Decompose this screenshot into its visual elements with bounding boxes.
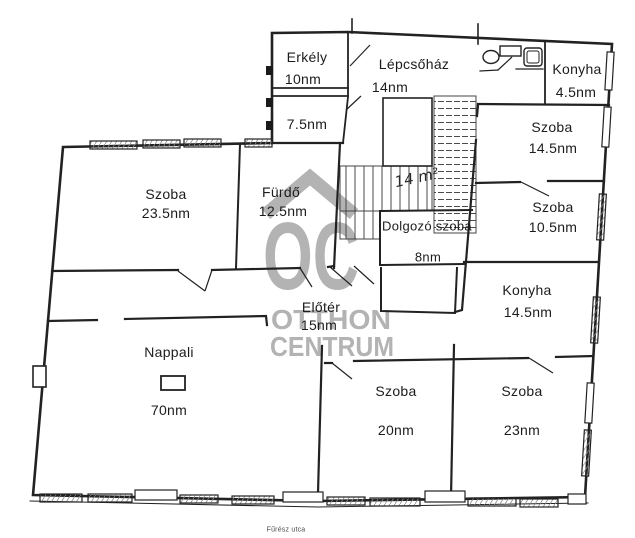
wall-szoba-furdo — [236, 144, 240, 268]
room-label-eloter-name: Előtér — [302, 300, 340, 314]
stair-landing — [383, 98, 432, 166]
room-label-lepcsohaz-area: 14nm — [372, 80, 408, 94]
bathroom-fixtures — [483, 46, 542, 66]
room-label-lepcsohaz-name: Lépcsőház — [379, 57, 449, 71]
room-label-dolgozo-area: 8nm — [415, 251, 441, 264]
room-label-szoba145-area: 14.5nm — [529, 141, 578, 155]
room-label-furdo-name: Fürdő — [262, 185, 300, 199]
sink-icon — [483, 51, 499, 64]
wall-szoba20-23 — [451, 345, 454, 497]
hinge-mark — [266, 66, 273, 75]
room-label-szoba20-name: Szoba — [375, 384, 416, 398]
door-szoba23 — [529, 358, 553, 373]
room-label-szoba145-name: Szoba — [531, 120, 572, 134]
wall-subbox — [381, 268, 457, 313]
wall-notch — [33, 366, 46, 387]
room-label-szoba23-name: Szoba — [501, 384, 542, 398]
door-szoba235 — [178, 270, 212, 291]
wall-right-column-left — [477, 105, 478, 116]
room-label-konyha145-name: Konyha — [502, 283, 551, 297]
room-label-szoba23-area: 23nm — [504, 423, 540, 437]
room-label-szoba235-name: Szoba — [145, 187, 186, 201]
wall-nappali-top — [48, 320, 97, 321]
floorplan-canvas: OC OTTHON CENTRUM — [0, 0, 635, 538]
room-label-konyha45-area: 4.5nm — [556, 85, 596, 99]
door-szoba20 — [332, 363, 352, 379]
room-label-szoba105-name: Szoba — [532, 200, 573, 214]
fireplace-icon — [161, 376, 185, 390]
watermark-line2: CENTRUM — [270, 331, 394, 362]
room-label-nappali-area: 70nm — [151, 403, 187, 417]
hinge-mark — [266, 121, 273, 130]
room-label-erkely-name: Erkély — [287, 50, 328, 64]
wall-dolgozo — [380, 210, 472, 211]
room-label-szoba20-area: 20nm — [378, 423, 414, 437]
hinge-mark — [266, 98, 273, 107]
street-label: Fűrész utca — [267, 527, 306, 534]
room-label-erkely-area: 10nm — [285, 72, 321, 86]
room-label-konyha45-name: Konyha — [552, 62, 601, 76]
room-label-eloter-area: 15nm — [301, 318, 337, 332]
room-label-furdo-area: 12.5nm — [259, 204, 308, 218]
door-szoba145 — [521, 182, 549, 196]
wall-corridor-top — [52, 270, 178, 271]
door-wc — [498, 57, 512, 70]
room-label-7-5-area: 7.5nm — [287, 117, 327, 131]
cistern-icon — [500, 46, 521, 56]
wall-bath-bottom — [478, 104, 609, 105]
room-label-konyha145-area: 14.5nm — [504, 305, 553, 319]
room-label-dolgozo-name: Dolgozó szoba — [382, 220, 472, 233]
room-label-szoba105-area: 10.5nm — [529, 220, 578, 234]
room-label-nappali-name: Nappali — [144, 345, 194, 359]
wall-szoba20-left — [318, 346, 322, 493]
room-label-szoba235-area: 23.5nm — [142, 206, 191, 220]
door-erkely — [350, 45, 370, 66]
